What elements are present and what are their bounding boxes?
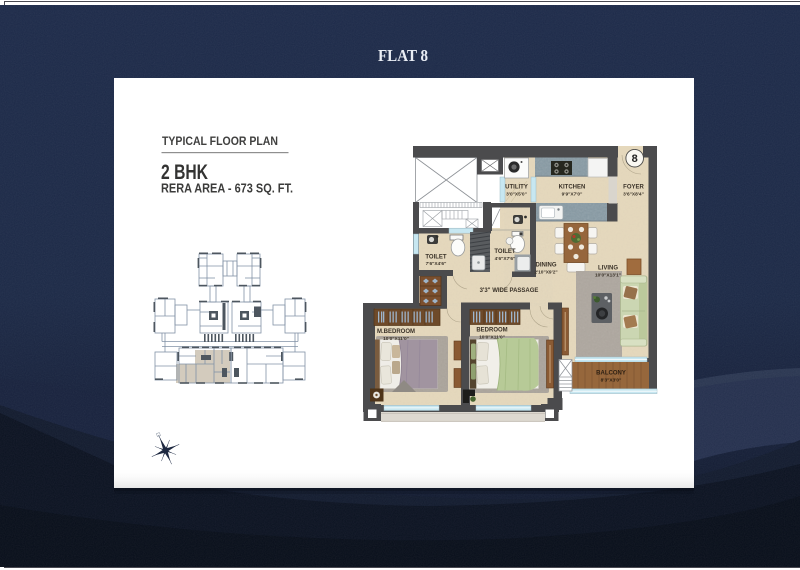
svg-text:BEDROOM: BEDROOM bbox=[476, 328, 507, 334]
svg-text:3'6"X8'4": 3'6"X8'4" bbox=[623, 192, 644, 198]
svg-text:4'6"X7'6": 4'6"X7'6" bbox=[495, 256, 516, 262]
svg-text:9'9"X7'0": 9'9"X7'0" bbox=[562, 192, 583, 198]
svg-text:RERA AREA - 673 SQ. FT.: RERA AREA - 673 SQ. FT. bbox=[161, 181, 293, 196]
svg-text:FOYER: FOYER bbox=[623, 185, 644, 191]
svg-text:TYPICAL FLOOR PLAN: TYPICAL FLOOR PLAN bbox=[162, 134, 278, 148]
svg-text:8: 8 bbox=[632, 153, 638, 165]
svg-text:DINING: DINING bbox=[536, 263, 557, 269]
svg-text:KITCHEN: KITCHEN bbox=[559, 185, 586, 191]
svg-text:UTILITY: UTILITY bbox=[505, 185, 528, 191]
svg-text:3'3" WIDE PASSAGE: 3'3" WIDE PASSAGE bbox=[480, 288, 539, 294]
svg-text:10'0"X11'0": 10'0"X11'0" bbox=[383, 336, 409, 342]
svg-text:LIVING: LIVING bbox=[598, 266, 618, 272]
svg-text:7'6"X4'6": 7'6"X4'6" bbox=[426, 261, 447, 267]
svg-text:8'3"X3'0": 8'3"X3'0" bbox=[601, 378, 622, 384]
svg-text:FLAT 8: FLAT 8 bbox=[378, 46, 428, 65]
svg-text:10'0"X13'1": 10'0"X13'1" bbox=[595, 273, 621, 279]
svg-text:3'0"X5'0": 3'0"X5'0" bbox=[506, 192, 527, 198]
svg-text:BALCONY: BALCONY bbox=[596, 371, 626, 377]
svg-text:2'10"X9'2": 2'10"X9'2" bbox=[534, 270, 557, 276]
svg-text:TOILET: TOILET bbox=[425, 255, 447, 261]
svg-text:10'0"X11'0": 10'0"X11'0" bbox=[479, 335, 505, 341]
svg-text:M.BEDROOM: M.BEDROOM bbox=[377, 329, 415, 335]
svg-text:TOILET: TOILET bbox=[494, 249, 516, 255]
